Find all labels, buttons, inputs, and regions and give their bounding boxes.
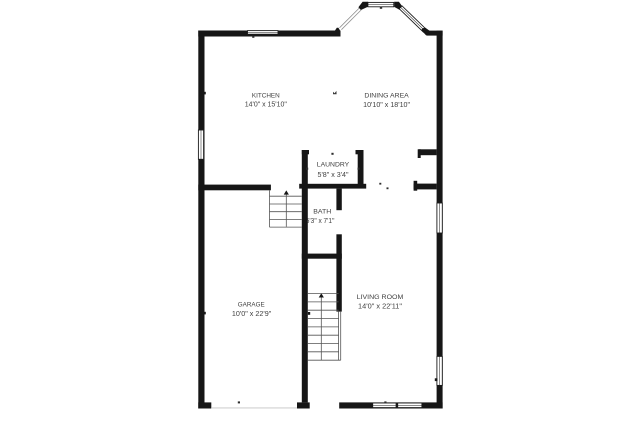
svg-text:14'0" x 22'11": 14'0" x 22'11" (358, 302, 402, 311)
svg-text:5'3" x 7'1": 5'3" x 7'1" (306, 216, 335, 225)
svg-text:BATH: BATH (313, 209, 331, 216)
svg-text:10'0" x 22'9": 10'0" x 22'9" (232, 309, 272, 318)
svg-text:14'0" x 15'10": 14'0" x 15'10" (245, 100, 288, 109)
svg-text:DINING AREA: DINING AREA (364, 93, 409, 100)
svg-text:LIVING ROOM: LIVING ROOM (357, 294, 404, 301)
svg-text:10'10" x 18'10": 10'10" x 18'10" (363, 100, 410, 109)
svg-text:KITCHEN: KITCHEN (252, 92, 280, 99)
svg-text:LAUNDRY: LAUNDRY (317, 162, 350, 169)
svg-text:GARAGE: GARAGE (238, 301, 265, 308)
svg-text:5'8" x 3'4": 5'8" x 3'4" (318, 170, 349, 179)
